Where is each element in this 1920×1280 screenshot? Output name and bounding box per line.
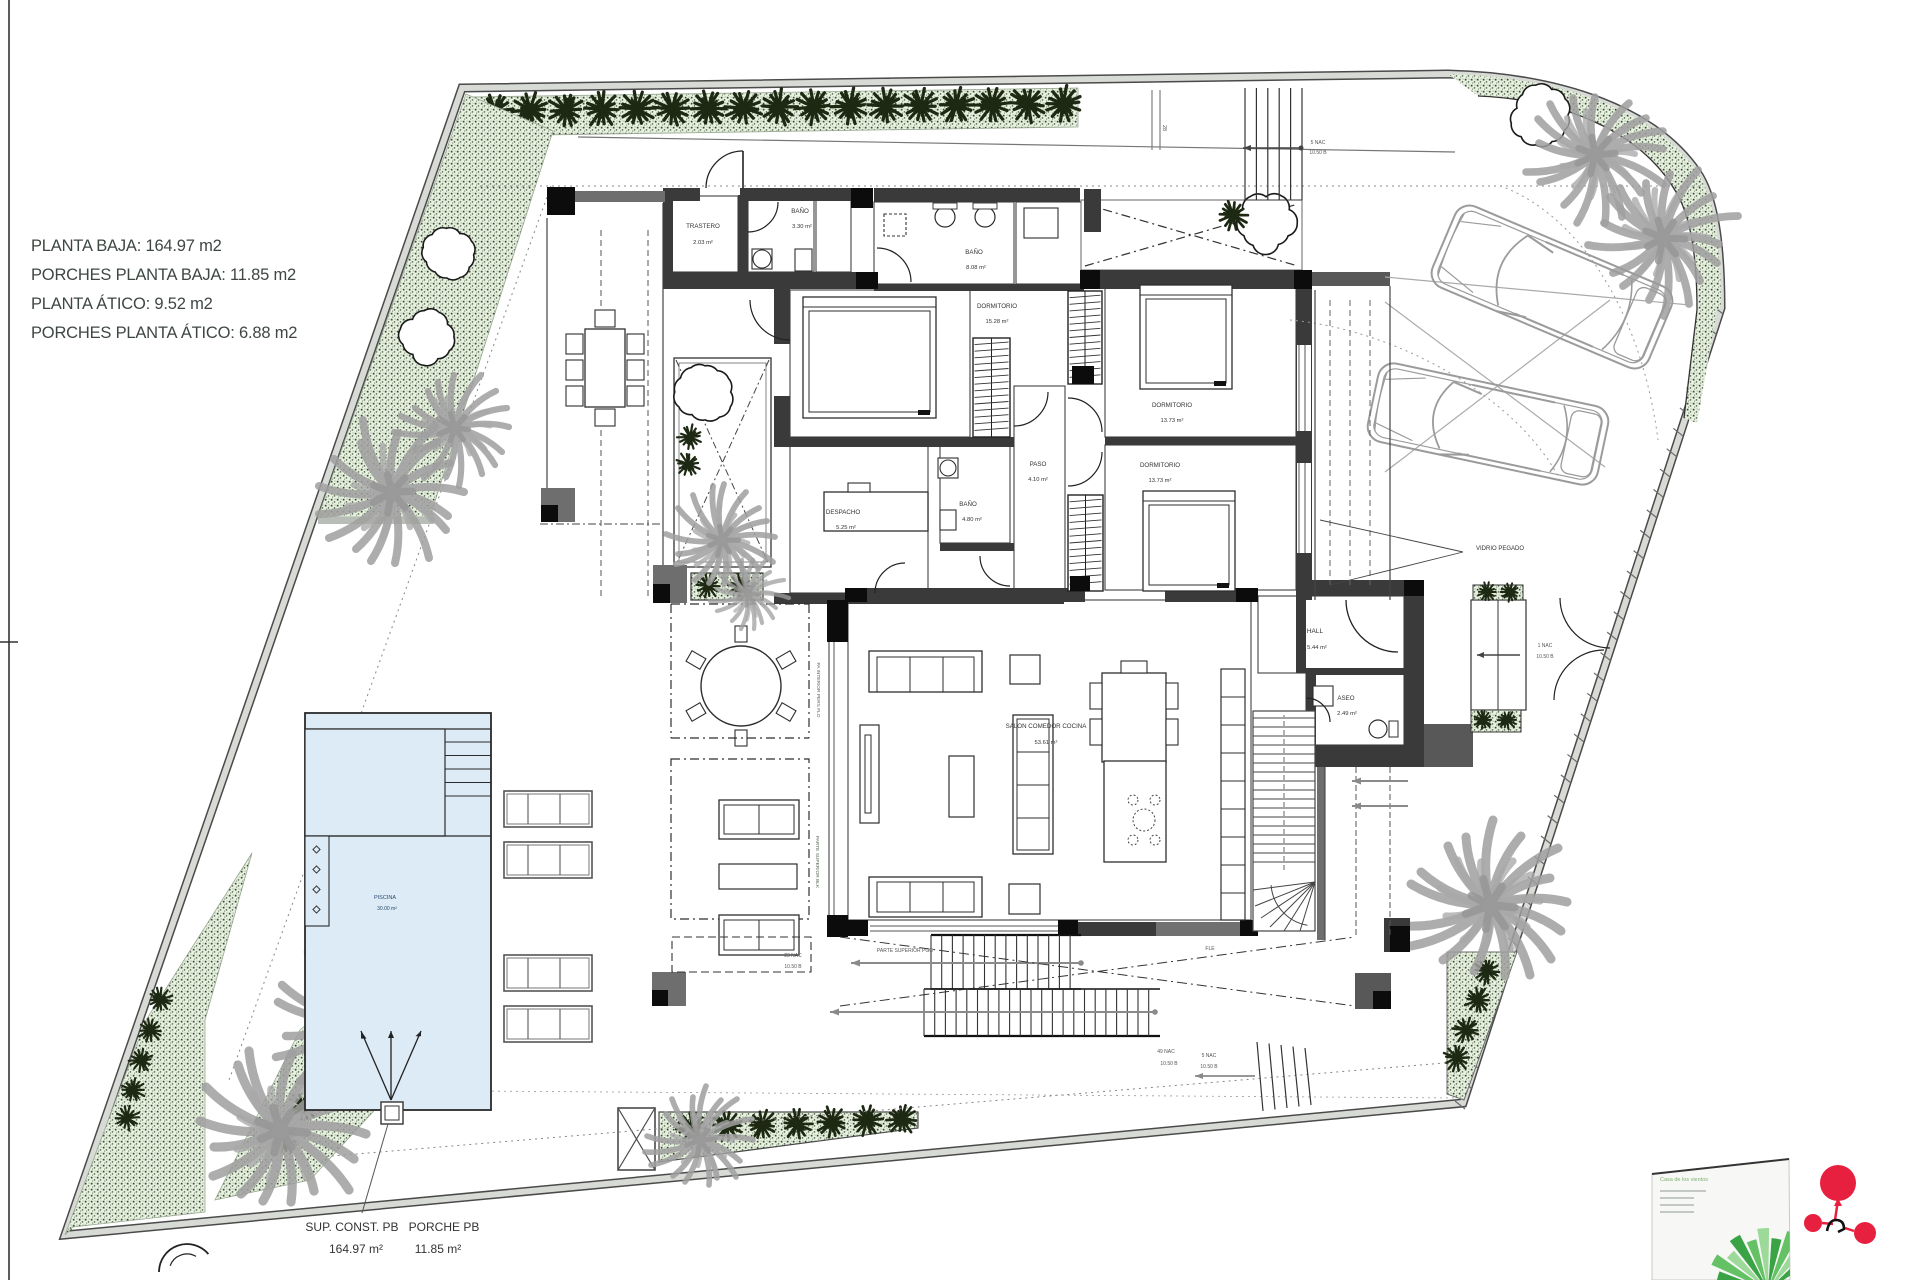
svg-text:10.50 B: 10.50 B [1160, 1061, 1178, 1067]
svg-text:10.50 B: 10.50 B [1309, 150, 1327, 156]
svg-text:49 NAC: 49 NAC [1157, 1049, 1175, 1055]
svg-text:8.08 m²: 8.08 m² [966, 265, 986, 271]
svg-text:VIDRIO PEGADO: VIDRIO PEGADO [1476, 546, 1524, 552]
svg-text:4.80 m²: 4.80 m² [962, 517, 982, 523]
svg-text:23 NAC: 23 NAC [784, 953, 802, 959]
svg-text:DESPACHO: DESPACHO [826, 509, 860, 516]
svg-text:53.61 m²: 53.61 m² [1035, 740, 1058, 746]
svg-text:BAÑO: BAÑO [959, 501, 977, 508]
svg-text:PLANTA ÁTICO: 9.52 m2: PLANTA ÁTICO: 9.52 m2 [31, 294, 213, 313]
svg-text:PISCINA: PISCINA [374, 895, 396, 901]
svg-text:DORMITORIO: DORMITORIO [977, 303, 1017, 310]
svg-text:10.50 B: 10.50 B [1536, 654, 1554, 660]
svg-text:BAÑO: BAÑO [791, 208, 809, 215]
svg-text:PARTE SUPERIOR PGO: PARTE SUPERIOR PGO [877, 948, 933, 954]
svg-text:PORCHES PLANTA ÁTICO: 6.88 m2: PORCHES PLANTA ÁTICO: 6.88 m2 [31, 323, 297, 342]
svg-text:15.28 m²: 15.28 m² [986, 319, 1009, 325]
svg-text:164.97 m²: 164.97 m² [329, 1242, 383, 1256]
svg-text:13.73 m²: 13.73 m² [1161, 418, 1184, 424]
svg-text:PARTE SUPERIOR BLK: PARTE SUPERIOR BLK [814, 836, 820, 889]
svg-text:5 NAC: 5 NAC [1202, 1053, 1217, 1059]
svg-text:SALON COMEDOR COCINA: SALON COMEDOR COCINA [1006, 723, 1088, 730]
svg-text:30.00 m²: 30.00 m² [377, 906, 397, 912]
svg-text:PA INTERIOR PERS FLO: PA INTERIOR PERS FLO [815, 662, 821, 717]
svg-text:PLANTA BAJA: 164.97 m2: PLANTA BAJA: 164.97 m2 [31, 237, 222, 255]
svg-text:2.49 m²: 2.49 m² [1337, 711, 1357, 717]
svg-text:HALL: HALL [1307, 628, 1324, 635]
svg-text:10.50 B: 10.50 B [784, 964, 802, 970]
svg-text:PORCHE PB: PORCHE PB [409, 1220, 480, 1234]
svg-text:BAÑO: BAÑO [965, 249, 983, 256]
svg-text:11.85 m²: 11.85 m² [415, 1242, 461, 1256]
svg-text:SUP. CONST. PB: SUP. CONST. PB [305, 1220, 398, 1234]
svg-text:10.50 B: 10.50 B [1200, 1064, 1218, 1070]
svg-text:3.30 m²: 3.30 m² [792, 224, 812, 230]
svg-text:5.44 m²: 5.44 m² [1307, 645, 1327, 651]
svg-text:PASO: PASO [1030, 461, 1047, 468]
svg-text:5.25 m²: 5.25 m² [836, 525, 856, 531]
svg-text:13.73 m²: 13.73 m² [1149, 478, 1172, 484]
svg-text:ASEO: ASEO [1337, 695, 1354, 702]
svg-text:1 NAC: 1 NAC [1538, 643, 1553, 649]
svg-text:PORCHES PLANTA BAJA: 11.85 m2: PORCHES PLANTA BAJA: 11.85 m2 [31, 266, 296, 284]
svg-text:2.03 m²: 2.03 m² [693, 240, 713, 246]
svg-text:28: 28 [1161, 125, 1167, 131]
svg-text:DORMITORIO: DORMITORIO [1152, 402, 1192, 409]
svg-text:4.10 m²: 4.10 m² [1028, 477, 1048, 483]
svg-text:Casa de los vientos: Casa de los vientos [1660, 1177, 1708, 1183]
svg-text:FLE: FLE [1205, 946, 1215, 952]
svg-text:TRASTERO: TRASTERO [686, 223, 720, 230]
svg-text:5 NAC: 5 NAC [1311, 140, 1326, 146]
svg-text:DORMITORIO: DORMITORIO [1140, 462, 1180, 469]
